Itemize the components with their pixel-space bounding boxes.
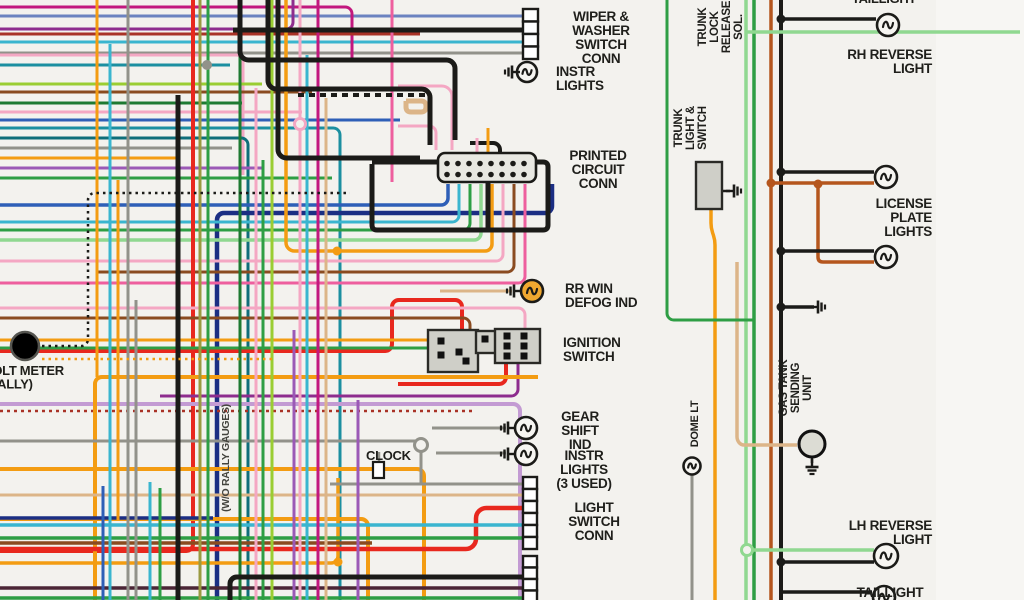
pc-conn-pin-dot [521, 161, 527, 167]
junction-dot-0 [777, 15, 786, 24]
connector-cell [523, 9, 538, 22]
connector-cell [523, 537, 537, 549]
connector-cell [523, 525, 537, 537]
label-taillight-top: TAILLIGHT [852, 0, 917, 6]
switch-pin-7 [504, 353, 511, 360]
bulb-dome-light-icon [684, 458, 701, 475]
junction-dot-8 [334, 558, 343, 567]
switch-pin-6 [504, 343, 511, 350]
label-taillight-bottom: TAILLIGHT [857, 585, 925, 600]
label-light-switch-conn: LIGHTSWITCHCONN [568, 500, 619, 543]
switch-pin-1 [438, 352, 445, 359]
pc-conn-pin-dot [488, 161, 494, 167]
switch-pin-10 [521, 353, 528, 360]
label-wo-rally-gauges: (W/O RALLY GAUGES) [220, 404, 232, 512]
pc-conn-pin-dot [477, 161, 483, 167]
junction-dot-10 [415, 439, 428, 452]
bulb-lh-reverse-light-icon [874, 544, 898, 568]
volt-meter-symbol [11, 332, 39, 360]
bulb-rr-win-defog-ind-icon [521, 280, 543, 302]
junction-dot-11 [742, 545, 753, 556]
pc-conn-pin-dot [444, 172, 450, 178]
printed-circuit-connector [438, 153, 536, 182]
label-instr-lights-3used: INSTRLIGHTS(3 USED) [556, 448, 611, 491]
switch-pin-2 [456, 349, 463, 356]
clock-symbol [373, 462, 384, 478]
pc-conn-pin-dot [510, 161, 516, 167]
pc-conn-pin-dot [466, 172, 472, 178]
wiring-diagram-svg: WIPER &WASHERSWITCHCONNINSTRLIGHTSPRINTE… [0, 0, 1024, 600]
connector-cell [523, 489, 537, 501]
switch-pin-4 [482, 336, 489, 343]
label-dome-lt: DOME LT [689, 400, 701, 447]
bulb-gear-shift-ind-icon [515, 417, 537, 439]
switch-pin-5 [504, 333, 511, 340]
gas-tank-sending-unit-symbol [799, 431, 825, 457]
bulb-instr-lights-3used-icon [515, 443, 537, 465]
connector-cell [523, 568, 537, 580]
wiring-diagram-page: WIPER &WASHERSWITCHCONNINSTRLIGHTSPRINTE… [0, 0, 1024, 600]
pc-conn-pin-dot [499, 161, 505, 167]
bulb-license-plate-2-icon [875, 246, 897, 268]
junction-dot-12 [202, 60, 212, 70]
connector-cell [523, 477, 537, 489]
pc-conn-pin-dot [499, 172, 505, 178]
pc-conn-pin-dot [488, 172, 494, 178]
junction-dot-5 [767, 179, 776, 188]
junction-dot-1 [777, 168, 786, 177]
pc-conn-pin-dot [455, 161, 461, 167]
switch-pin-0 [438, 338, 445, 345]
pc-conn-pin-dot [444, 161, 450, 167]
connector-cell [523, 501, 537, 513]
pc-conn-pin-dot [466, 161, 472, 167]
connector-cell [523, 22, 538, 35]
connector-cell [523, 47, 538, 60]
connector-cell [523, 513, 537, 525]
trunk-light-switch-box [696, 162, 722, 209]
junction-dot-2 [777, 247, 786, 256]
connector-cell [523, 34, 538, 47]
junction-dot-3 [777, 303, 786, 312]
connector-cell [523, 591, 537, 600]
bulb-license-plate-1-icon [875, 166, 897, 188]
page-edge-band [936, 0, 1024, 600]
switch-pin-9 [521, 343, 528, 350]
connector-cell [523, 556, 537, 568]
wiper-washer-switch-connector [523, 9, 538, 59]
pc-conn-pin-dot [455, 172, 461, 178]
lower-harness-connector [523, 556, 537, 600]
label-ignition-switch: IGNITIONSWITCH [563, 335, 621, 364]
switch-pin-8 [521, 333, 528, 340]
pc-conn-pin-dot [521, 172, 527, 178]
junction-dot-7 [333, 247, 342, 256]
pc-conn-pin-dot [477, 172, 483, 178]
light-switch-connector [523, 477, 537, 549]
label-clock: CLOCK [366, 448, 412, 463]
bulb-rh-reverse-light-icon [877, 14, 899, 36]
junction-dot-4 [777, 558, 786, 567]
ignition-switch-box-right [495, 329, 540, 363]
junction-dot-9 [295, 119, 306, 130]
switch-pin-3 [463, 358, 470, 365]
pc-conn-pin-dot [510, 172, 516, 178]
connector-cell [523, 579, 537, 591]
label-trunk-light-switch: TRUNKLIGHT &SWITCH [673, 106, 709, 150]
junction-dot-6 [814, 180, 823, 189]
ignition-switch-box-left [428, 330, 478, 372]
